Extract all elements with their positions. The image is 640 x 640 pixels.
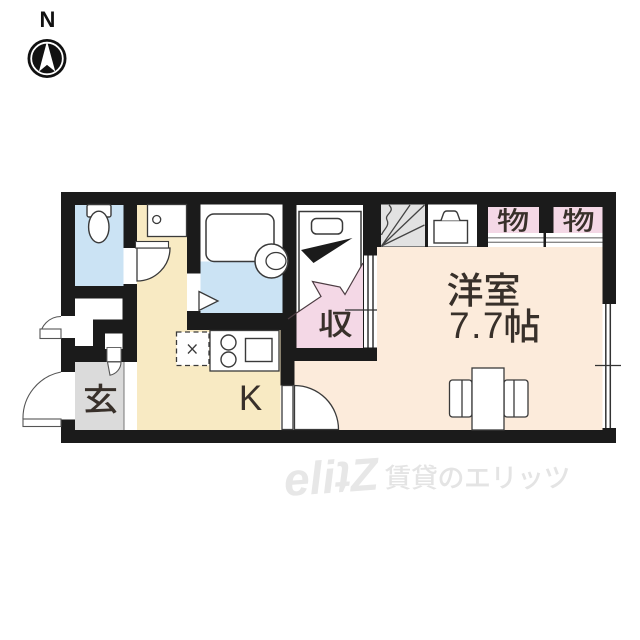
svg-text:K: K — [239, 379, 262, 418]
svg-text:7.7: 7.7 — [449, 305, 505, 346]
svg-text:N: N — [40, 7, 56, 32]
svg-text:eliʇZ: eliʇZ — [282, 447, 382, 506]
